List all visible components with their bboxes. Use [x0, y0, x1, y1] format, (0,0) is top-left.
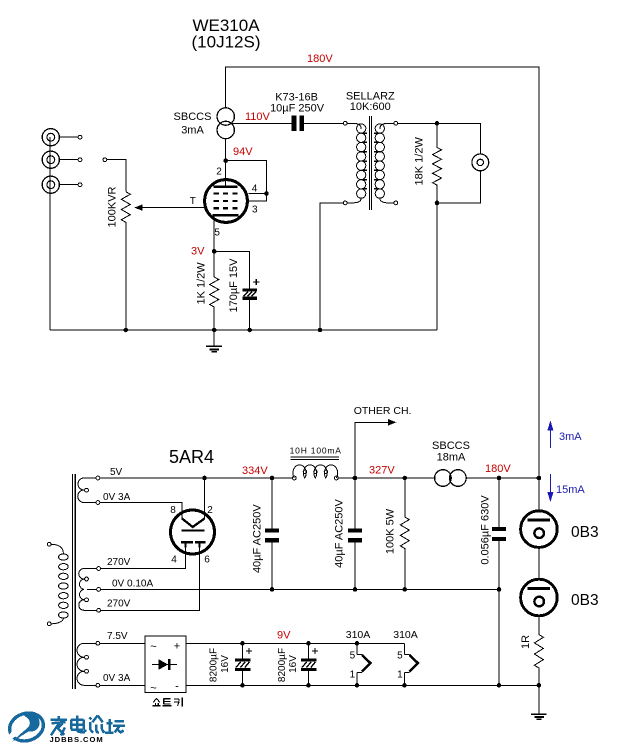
svg-text:SBCCS: SBCCS — [432, 440, 470, 452]
svg-text:180V: 180V — [485, 463, 511, 475]
svg-text:310A: 310A — [346, 629, 371, 641]
svg-text:4: 4 — [252, 183, 258, 194]
svg-text:3mA: 3mA — [559, 431, 582, 443]
svg-text:1: 1 — [350, 670, 356, 681]
svg-text:8200µF: 8200µF — [277, 648, 288, 682]
svg-text:8200µF: 8200µF — [208, 648, 219, 682]
svg-text:0B3: 0B3 — [571, 524, 599, 541]
svg-text:310A: 310A — [393, 629, 418, 641]
svg-text:T: T — [190, 196, 196, 207]
svg-text:94V: 94V — [233, 146, 253, 158]
svg-text:15mA: 15mA — [556, 484, 585, 496]
svg-text:180V: 180V — [307, 53, 333, 65]
svg-text:1R: 1R — [520, 635, 532, 649]
svg-text:3: 3 — [252, 204, 258, 215]
svg-text:4: 4 — [171, 555, 177, 566]
svg-text:0V 3A: 0V 3A — [103, 673, 131, 684]
svg-text:40µF AC250V: 40µF AC250V — [252, 504, 264, 573]
svg-text:16V: 16V — [220, 655, 231, 673]
svg-text:2: 2 — [216, 167, 222, 178]
svg-text:~: ~ — [150, 641, 156, 653]
svg-text:10K:600: 10K:600 — [350, 101, 391, 113]
svg-text:6: 6 — [204, 555, 210, 566]
svg-text:5: 5 — [350, 651, 356, 662]
svg-text:0V 3A: 0V 3A — [103, 492, 131, 503]
svg-text:1K 1/2W: 1K 1/2W — [195, 262, 207, 305]
svg-text:~: ~ — [150, 683, 156, 695]
svg-text:16V: 16V — [288, 655, 299, 673]
svg-text:40µF AC250V: 40µF AC250V — [334, 498, 346, 567]
svg-text:5V: 5V — [110, 467, 123, 478]
svg-text:8: 8 — [170, 505, 176, 516]
svg-text:10H 100mA: 10H 100mA — [290, 446, 342, 456]
svg-text:18mA: 18mA — [437, 452, 466, 464]
svg-text:5: 5 — [214, 228, 220, 239]
svg-text:-: - — [175, 681, 179, 693]
svg-text:100K 5W: 100K 5W — [385, 508, 397, 554]
svg-text:5: 5 — [397, 651, 403, 662]
svg-text:9V: 9V — [277, 630, 291, 642]
svg-text:0.056µF 630V: 0.056µF 630V — [480, 495, 492, 565]
svg-text:327V: 327V — [369, 465, 395, 477]
svg-text:3V: 3V — [191, 246, 205, 258]
svg-text:334V: 334V — [242, 465, 268, 477]
svg-text:3mA: 3mA — [181, 125, 204, 137]
svg-text:5AR4: 5AR4 — [169, 447, 214, 467]
svg-text:110V: 110V — [245, 111, 271, 123]
svg-text:(10J12S): (10J12S) — [192, 33, 261, 52]
svg-text:170µF 15V: 170µF 15V — [228, 258, 240, 313]
svg-text:1: 1 — [397, 670, 403, 681]
svg-text:OTHER CH.: OTHER CH. — [354, 405, 412, 417]
svg-text:7.5V: 7.5V — [107, 631, 128, 642]
svg-text:+: + — [174, 641, 180, 653]
svg-text:18K 1/2W: 18K 1/2W — [414, 137, 426, 186]
svg-text:0B3: 0B3 — [571, 592, 599, 609]
svg-text:0V 0.10A: 0V 0.10A — [112, 579, 153, 590]
svg-text:SBCCS: SBCCS — [174, 111, 212, 123]
svg-text:2: 2 — [207, 505, 213, 516]
svg-text:10µF 250V: 10µF 250V — [270, 103, 325, 115]
svg-text:270V: 270V — [107, 557, 131, 568]
svg-text:JDBBS.COM: JDBBS.COM — [50, 735, 104, 744]
svg-text:100KVR: 100KVR — [107, 186, 119, 227]
svg-text:270V: 270V — [107, 599, 131, 610]
